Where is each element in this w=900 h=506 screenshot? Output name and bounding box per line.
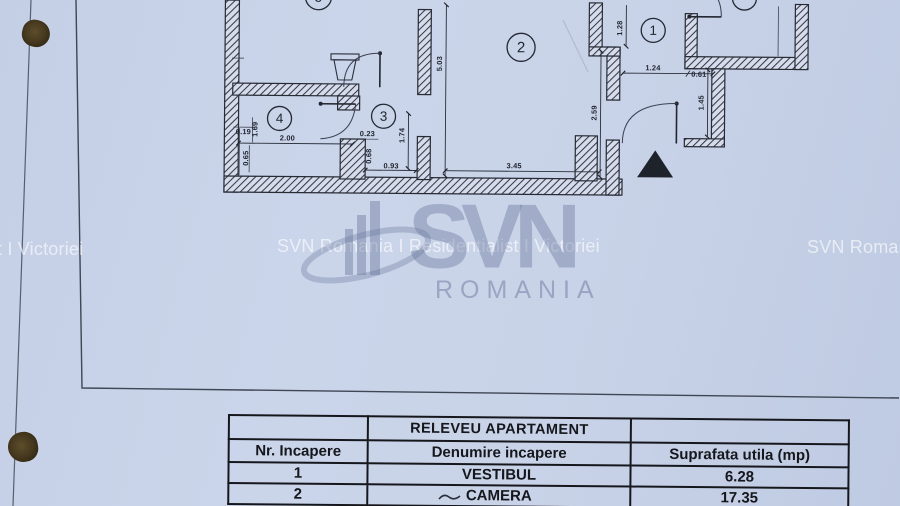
- dimension-label: 0.23: [360, 129, 375, 138]
- door-wc: [687, 0, 721, 19]
- dimension-label: 1.69: [250, 122, 259, 137]
- wall-segment: [340, 139, 365, 179]
- wall-segment: [684, 139, 724, 147]
- punch-hole: [22, 20, 50, 47]
- door-bathroom: [344, 51, 382, 87]
- wall-segment: [795, 4, 809, 69]
- page-edge-line: [13, 0, 31, 506]
- table-title-cell-empty: [631, 419, 849, 445]
- room-number: 5: [315, 0, 323, 5]
- door-swing-arc: [344, 53, 380, 87]
- wall-segment: [685, 57, 807, 70]
- wall-segment: [417, 137, 430, 180]
- cell-room-nr: 2: [228, 483, 367, 505]
- wall-segment: [606, 140, 619, 195]
- dimension-label: 1.45: [697, 95, 706, 110]
- room-number: 3: [380, 109, 388, 124]
- scanned-document-page: 5.03 1.74 2.59 1.28 1.45 0.68 1.69 0.65 …: [0, 0, 900, 506]
- room-number: 4: [276, 111, 284, 126]
- wall-segment: [338, 96, 360, 110]
- cell-room-name: VESTIBUL: [367, 463, 630, 486]
- wall-segment: [418, 10, 432, 95]
- entrance-triangle-marker: [637, 150, 673, 177]
- dimension-label: 1.74: [397, 127, 406, 143]
- toilet-tank: [331, 54, 359, 60]
- table-title: RELEVEU APARTAMENT: [368, 416, 631, 442]
- cell-room-nr: 1: [228, 462, 367, 484]
- dimension-label: 0.68: [364, 149, 373, 164]
- wall-segment: [224, 0, 240, 192]
- cell-room-area: 17.35: [630, 487, 848, 506]
- door-swing-arc: [622, 103, 676, 143]
- column-header-nr: Nr. Incapere: [229, 439, 368, 463]
- column-header-suprafata: Suprafata utila (mp): [631, 443, 849, 468]
- room-circle-6: [732, 0, 756, 10]
- dimension-label: 0.93: [384, 161, 399, 170]
- dimension-label: 3.45: [507, 161, 522, 170]
- releveu-table: RELEVEU APARTAMENT Nr. Incapere Denumire…: [227, 414, 848, 506]
- dimension-label: 0.65: [241, 151, 250, 166]
- dimension-label: 0.61: [691, 70, 706, 79]
- dimension-label: 5.03: [435, 56, 444, 71]
- wall-segment: [233, 83, 359, 96]
- wall-segment: [589, 47, 620, 56]
- room-number: 2: [517, 39, 525, 56]
- pen-squiggle-mark: [438, 491, 462, 503]
- room-number: 1: [649, 23, 657, 38]
- dimension-label: 2.59: [590, 105, 599, 120]
- dimension-label: 2.00: [280, 133, 295, 142]
- dimension-label: 1.24: [645, 63, 661, 72]
- dimension-label: 1.28: [615, 20, 624, 35]
- scan-scratch: [563, 20, 588, 72]
- cell-room-area: 6.28: [630, 466, 848, 489]
- wall-segment: [575, 136, 597, 181]
- room-number-circles: 1 2 3 4 5: [267, 0, 756, 134]
- punch-hole: [8, 432, 38, 462]
- wall-segment: [711, 69, 725, 147]
- door-vestibule: [622, 101, 678, 143]
- cell-room-name: CAMERA: [367, 484, 630, 506]
- column-header-denumire: Denumire incapere: [368, 440, 631, 465]
- table-title-cell-empty: [229, 415, 368, 440]
- dimension-label: 0.19: [236, 127, 251, 136]
- wall-segment: [589, 3, 602, 49]
- floor-plan: 5.03 1.74 2.59 1.28 1.45 0.68 1.69 0.65 …: [224, 0, 809, 197]
